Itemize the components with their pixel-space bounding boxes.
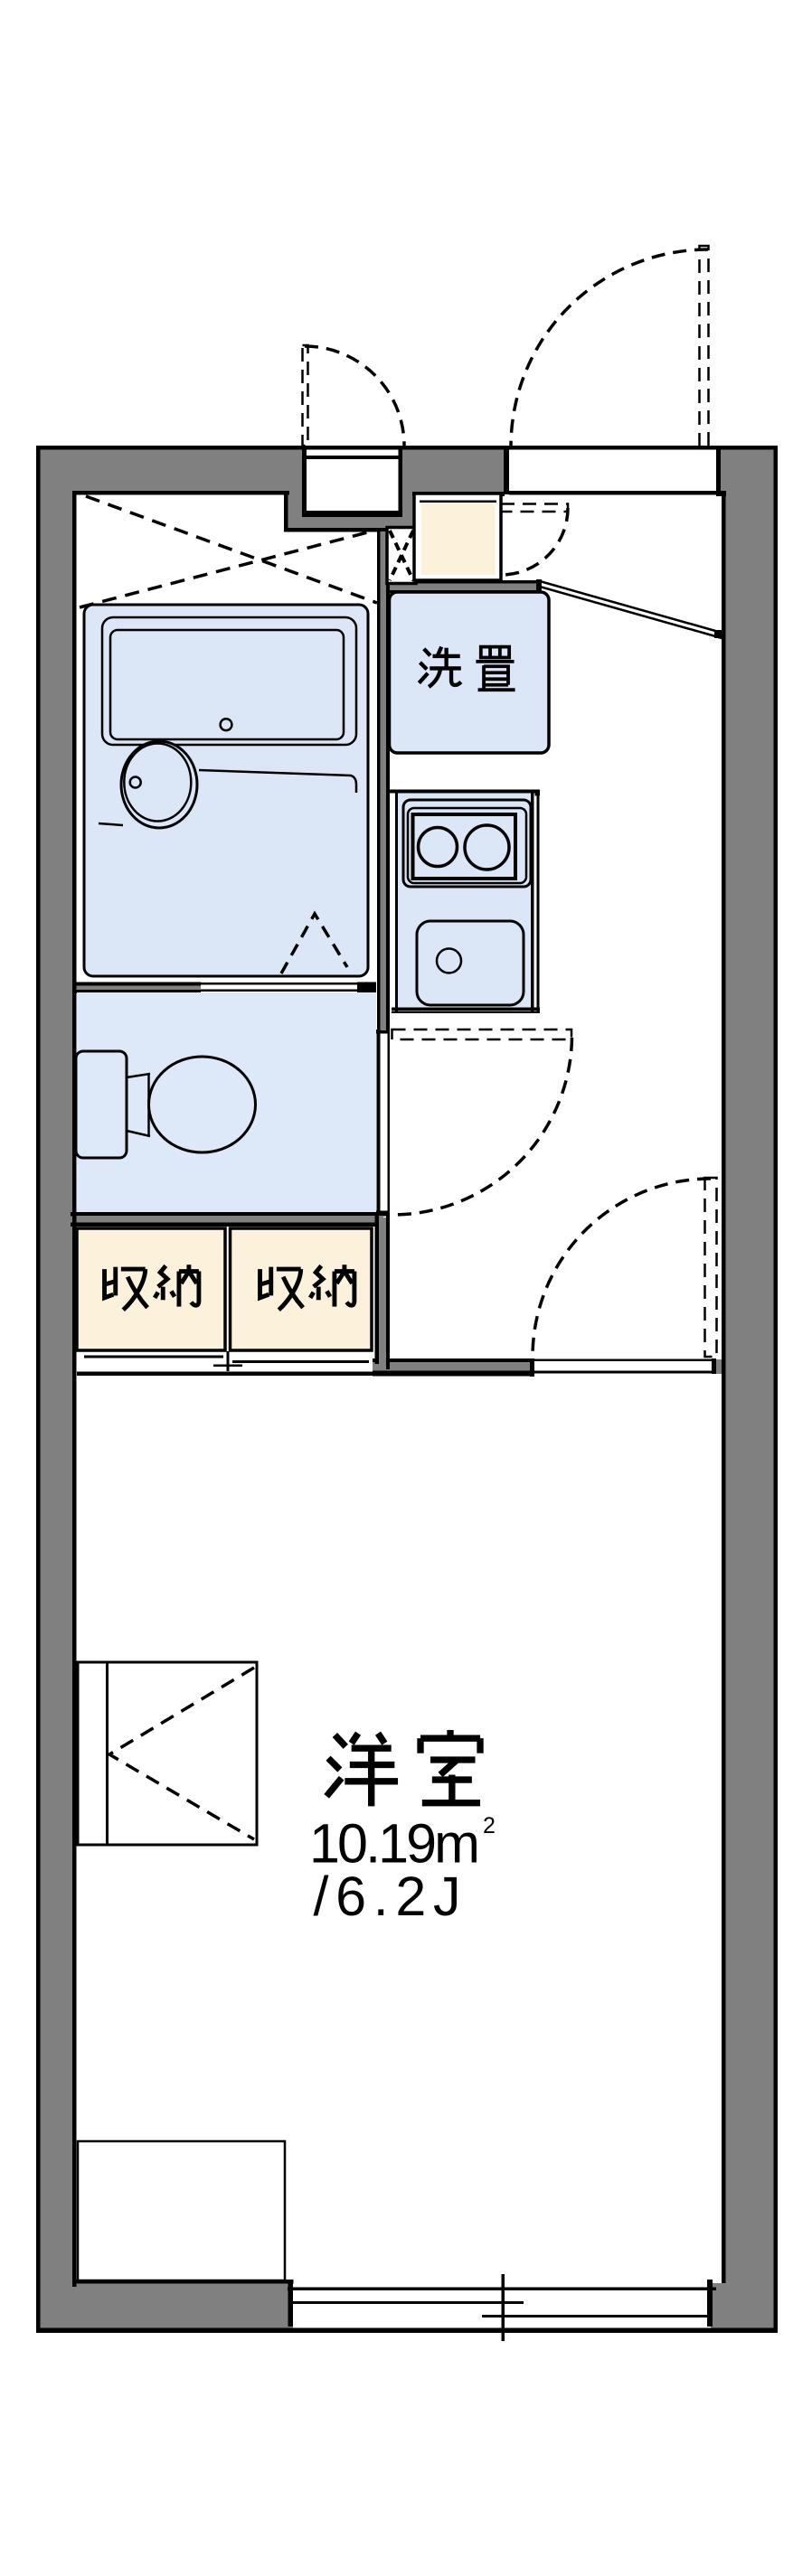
svg-text:2: 2 [483,1813,496,1838]
svg-text:/6.2J: /6.2J [314,1866,461,1927]
